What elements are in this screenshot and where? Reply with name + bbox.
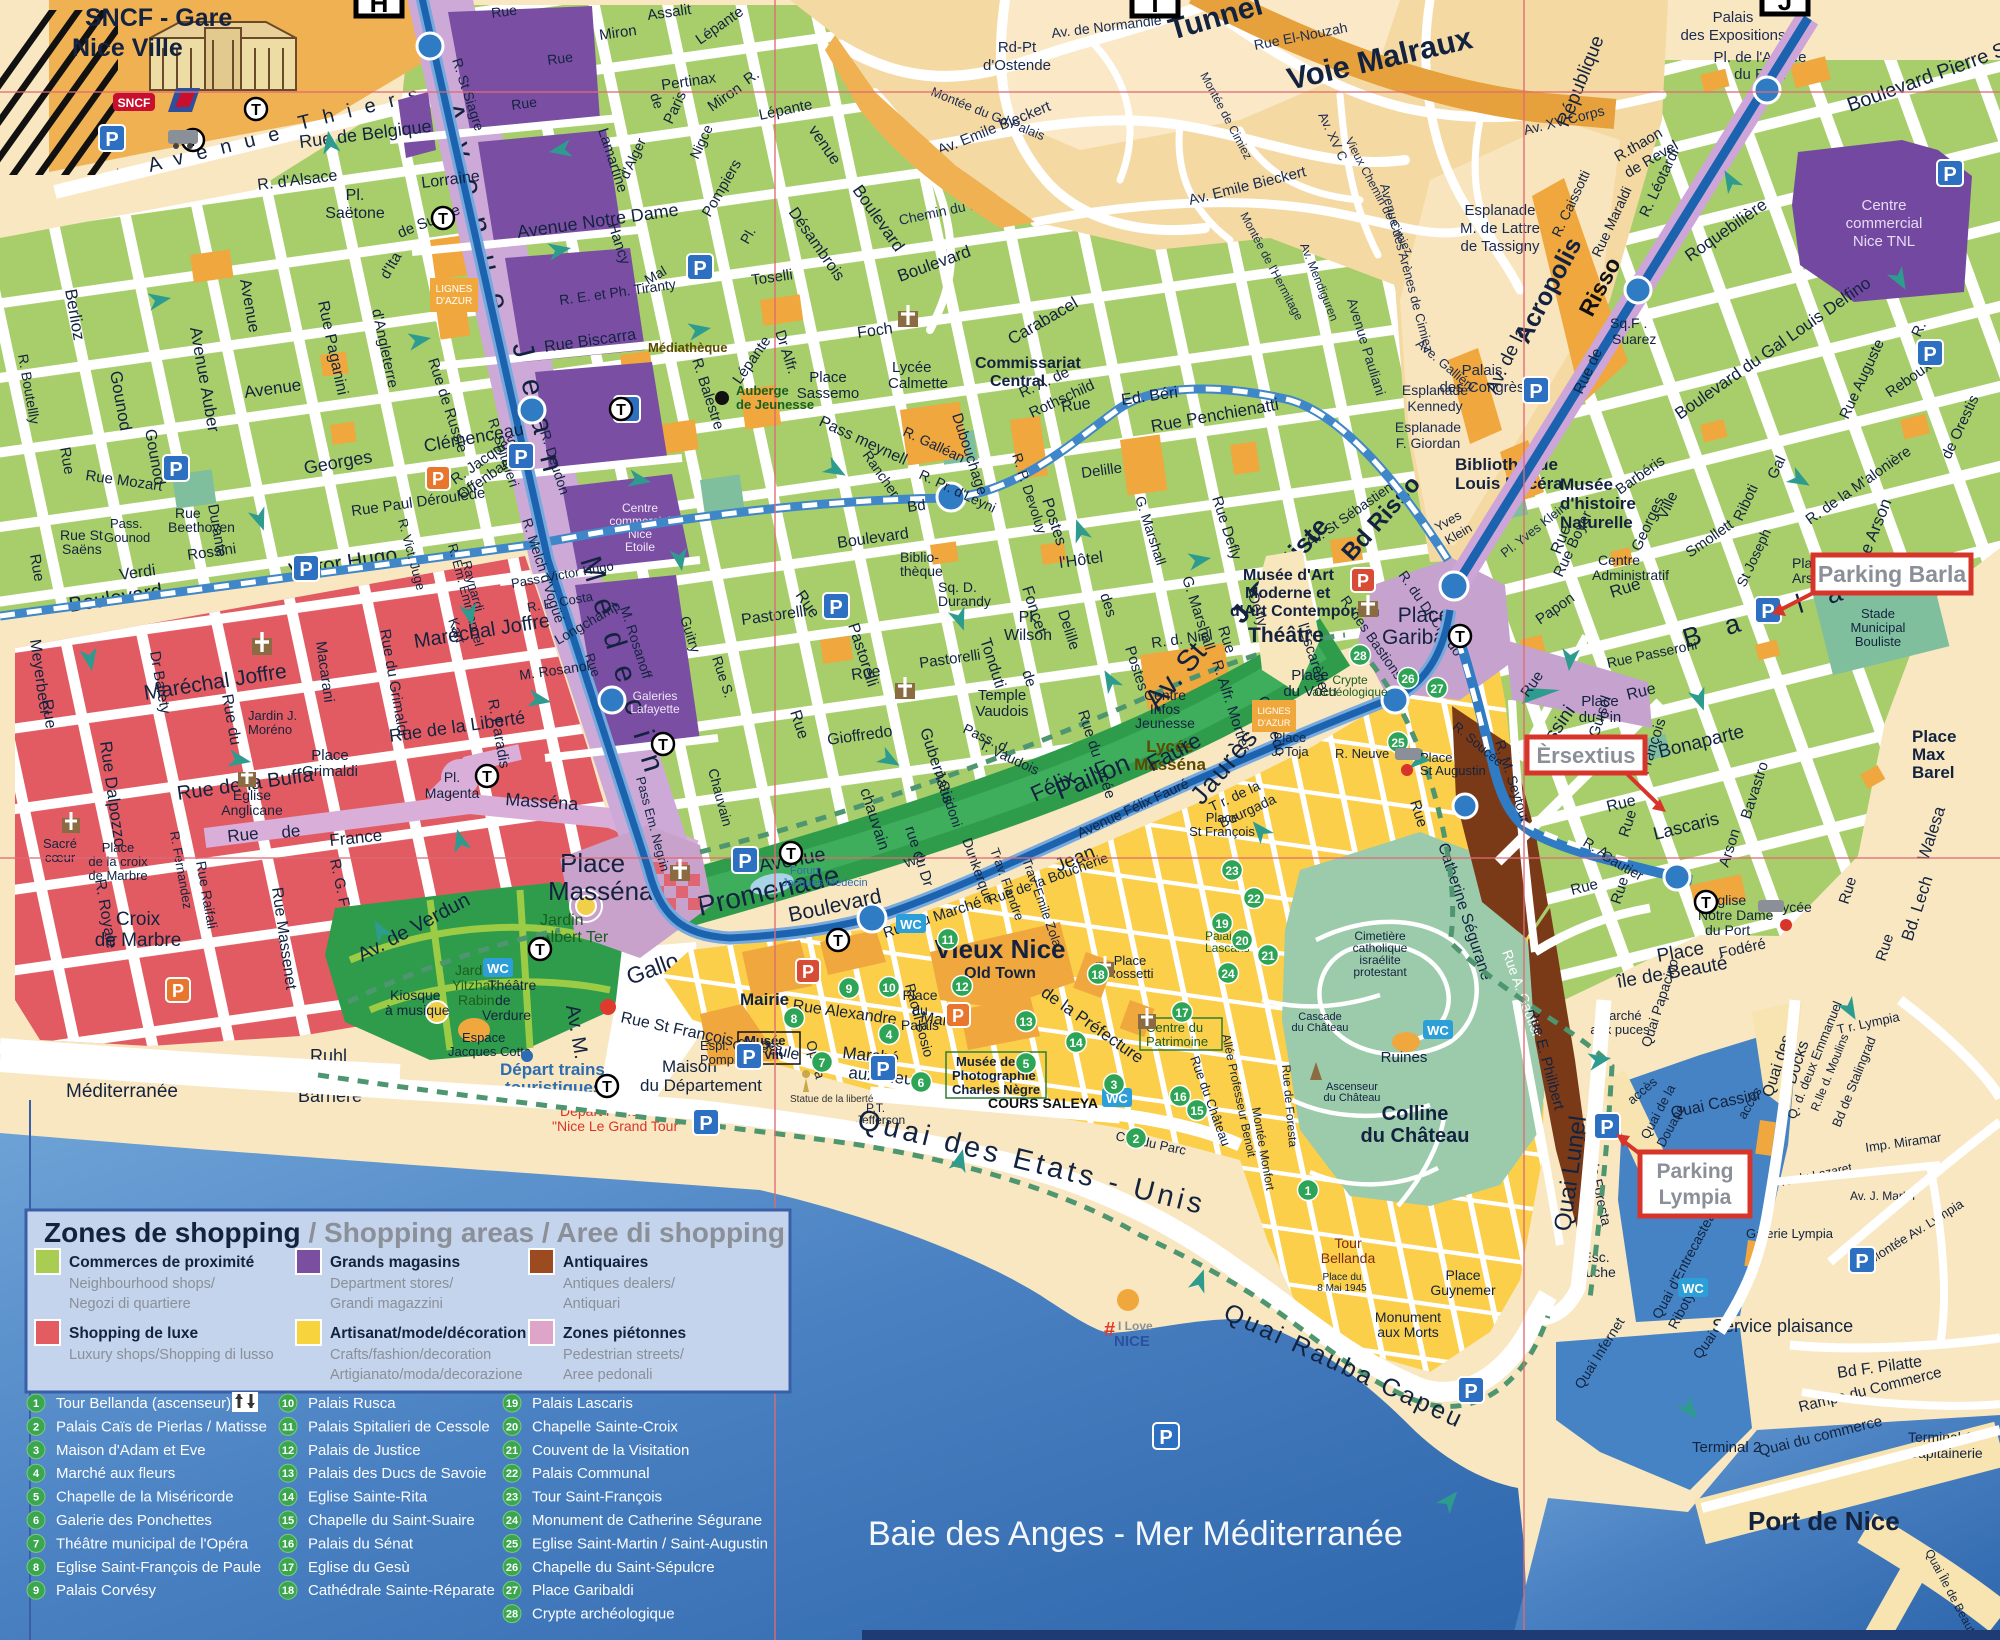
svg-text:I Love: I Love (1118, 1319, 1153, 1333)
svg-text:26: 26 (1401, 672, 1415, 686)
svg-text:25: 25 (506, 1538, 518, 1550)
svg-text:25: 25 (1391, 736, 1405, 750)
svg-text:Department stores/: Department stores/ (330, 1276, 454, 1292)
svg-text:Musée d'Art: Musée d'Art (1243, 567, 1335, 584)
svg-text:SNCF: SNCF (118, 96, 151, 110)
svg-text:Antiques dealers/: Antiques dealers/ (563, 1276, 676, 1292)
svg-text:Grands magasins: Grands magasins (330, 1254, 460, 1271)
svg-text:26: 26 (506, 1562, 518, 1574)
svg-text:J: J (1778, 0, 1792, 16)
svg-text:Durandy: Durandy (938, 593, 991, 609)
svg-text:Kennedy: Kennedy (1407, 398, 1462, 414)
svg-text:WC: WC (1427, 1023, 1449, 1038)
svg-text:D'AZUR: D'AZUR (1258, 718, 1291, 728)
svg-text:Grimaldi: Grimaldi (302, 763, 358, 780)
svg-text:Gounod: Gounod (104, 530, 150, 545)
svg-text:5: 5 (1023, 1057, 1030, 1071)
svg-text:P: P (1529, 381, 1542, 403)
svg-text:27: 27 (506, 1585, 518, 1597)
svg-text:P: P (1855, 1251, 1868, 1273)
svg-text:thèque: thèque (900, 563, 943, 579)
svg-text:18: 18 (1091, 968, 1105, 982)
svg-text:Vaudois: Vaudois (975, 703, 1028, 720)
svg-text:Barel: Barel (1912, 763, 1955, 782)
svg-text:28: 28 (1353, 649, 1367, 663)
svg-text:5: 5 (33, 1492, 39, 1504)
svg-text:Pl.: Pl. (346, 187, 365, 204)
svg-text:Nice Ville: Nice Ville (72, 34, 183, 62)
svg-text:19: 19 (1215, 917, 1229, 931)
svg-text:Patrimoine: Patrimoine (1146, 1034, 1208, 1049)
svg-text:22: 22 (1247, 892, 1261, 906)
svg-text:archéologique: archéologique (1312, 685, 1388, 699)
svg-text:Palais des Ducs de Savoie: Palais des Ducs de Savoie (308, 1465, 486, 1482)
svg-text:Bellanda: Bellanda (1321, 1250, 1376, 1266)
svg-text:LIGNES: LIGNES (436, 284, 473, 295)
svg-text:de la croix: de la croix (88, 854, 148, 869)
svg-text:Guynemer: Guynemer (1430, 1282, 1496, 1298)
svg-text:Kiosque: Kiosque (390, 987, 441, 1003)
svg-text:Eglise Sainte-Rita: Eglise Sainte-Rita (308, 1489, 428, 1506)
svg-text:Rue: Rue (226, 824, 259, 846)
svg-text:P: P (299, 559, 312, 581)
svg-text:Chapelle du Saint-Sépulcre: Chapelle du Saint-Sépulcre (532, 1559, 715, 1576)
svg-text:Palais Caïs de Pierlas / Matis: Palais Caïs de Pierlas / Matisse (56, 1418, 267, 1435)
svg-text:Place: Place (902, 987, 937, 1003)
svg-text:P: P (693, 258, 706, 280)
svg-text:Centre: Centre (1598, 552, 1640, 568)
svg-text:Moderne et: Moderne et (1245, 585, 1331, 602)
svg-text:Marché aux fleurs: Marché aux fleurs (56, 1465, 175, 1482)
svg-text:Antiquari: Antiquari (563, 1296, 620, 1312)
svg-text:Centre: Centre (1861, 197, 1906, 214)
svg-text:Bd: Bd (906, 497, 927, 516)
svg-text:17: 17 (1175, 1006, 1189, 1020)
svg-text:10: 10 (882, 981, 896, 995)
svg-text:7: 7 (819, 1056, 826, 1070)
svg-text:Calmette: Calmette (888, 375, 948, 392)
svg-text:Croix: Croix (116, 909, 161, 930)
svg-text:du Château: du Château (1324, 1092, 1381, 1104)
svg-text:T: T (251, 102, 261, 119)
svg-text:28: 28 (506, 1609, 518, 1621)
svg-text:T: T (833, 933, 843, 950)
svg-text:Zones piétonnes: Zones piétonnes (563, 1325, 686, 1342)
svg-text:P: P (952, 1006, 964, 1026)
svg-text:P: P (742, 1047, 755, 1069)
svg-text:Galerie des Ponchettes: Galerie des Ponchettes (56, 1512, 212, 1529)
svg-text:Esplanade: Esplanade (1395, 419, 1461, 435)
svg-text:Maison d'Adam et Eve: Maison d'Adam et Eve (56, 1442, 206, 1459)
svg-text:Beethoven: Beethoven (168, 519, 235, 535)
svg-text:P: P (1357, 571, 1369, 591)
svg-text:Place Garibaldi: Place Garibaldi (532, 1582, 634, 1599)
svg-text:Place: Place (1274, 730, 1307, 745)
svg-text:commercial: commercial (1846, 215, 1923, 232)
svg-text:P: P (1159, 1427, 1172, 1449)
svg-text:Artisanat/mode/décoration: Artisanat/mode/décoration (330, 1325, 526, 1342)
svg-text:J. Toja: J. Toja (1271, 744, 1309, 759)
svg-text:Place du: Place du (1323, 1272, 1362, 1283)
svg-text:T: T (786, 846, 796, 863)
svg-text:Eglise Saint-François de Paule: Eglise Saint-François de Paule (56, 1559, 261, 1576)
svg-text:Jardin J.: Jardin J. (248, 708, 297, 723)
svg-text:Rd-Pt: Rd-Pt (998, 39, 1037, 56)
svg-text:Palais du Sénat: Palais du Sénat (308, 1535, 414, 1552)
svg-text:Commerces de proximité: Commerces de proximité (69, 1254, 255, 1271)
svg-text:de Marbre: de Marbre (88, 868, 147, 883)
svg-text:Place: Place (1912, 727, 1956, 746)
svg-text:Musée: Musée (1560, 475, 1613, 494)
svg-text:P: P (169, 459, 182, 481)
svg-text:SNCF - Gare: SNCF - Gare (85, 4, 232, 32)
svg-text:1: 1 (1305, 1184, 1312, 1198)
svg-text:Tour Bellanda (ascenseur): Tour Bellanda (ascenseur) (56, 1395, 231, 1412)
svg-text:7: 7 (33, 1538, 39, 1550)
svg-text:3: 3 (33, 1445, 39, 1457)
svg-text:P: P (514, 447, 527, 469)
svg-text:Crafts/fashion/decoration: Crafts/fashion/decoration (330, 1347, 491, 1363)
svg-text:Max: Max (1912, 745, 1946, 764)
svg-text:23: 23 (506, 1492, 518, 1504)
svg-text:14: 14 (282, 1492, 295, 1504)
svg-text:Théâtre municipal de l'Opéra: Théâtre municipal de l'Opéra (56, 1535, 249, 1552)
svg-text:de Jeunesse: de Jeunesse (736, 397, 814, 412)
svg-text:Espace: Espace (462, 1030, 505, 1045)
svg-text:Stade: Stade (1861, 606, 1895, 621)
svg-text:Galeries: Galeries (633, 689, 678, 703)
svg-text:Suarez: Suarez (1612, 331, 1656, 347)
svg-text:Place: Place (1291, 667, 1329, 684)
svg-text:LIGNES: LIGNES (1257, 706, 1290, 716)
svg-text:8 Mai 1945: 8 Mai 1945 (1317, 1283, 1367, 1294)
svg-text:Auberge: Auberge (736, 383, 789, 398)
svg-text:Départ trains: Départ trains (500, 1060, 605, 1079)
svg-text:Etoile: Etoile (625, 540, 655, 554)
svg-text:Place: Place (809, 369, 847, 386)
svg-text:T: T (535, 942, 545, 959)
svg-text:de: de (280, 821, 301, 842)
svg-text:T: T (616, 402, 626, 419)
svg-text:Palais de Justice: Palais de Justice (308, 1442, 421, 1459)
svg-text:Colline: Colline (1382, 1103, 1449, 1125)
svg-text:protestant: protestant (1353, 965, 1407, 979)
svg-text:Couvent de la Visitation: Couvent de la Visitation (532, 1442, 689, 1459)
svg-text:T: T (1701, 895, 1711, 912)
svg-text:Municipal: Municipal (1851, 620, 1906, 635)
svg-text:Pedestrian streets/: Pedestrian streets/ (563, 1347, 685, 1363)
svg-text:Médiathèque: Médiathèque (648, 340, 727, 355)
svg-text:6: 6 (918, 1076, 925, 1090)
svg-text:WC: WC (487, 961, 509, 976)
svg-text:1: 1 (33, 1398, 39, 1410)
svg-text:14: 14 (1069, 1036, 1083, 1050)
svg-text:T: T (438, 211, 448, 228)
svg-text:4: 4 (886, 1028, 893, 1042)
svg-text:Jacques Médecin: Jacques Médecin (782, 877, 868, 889)
svg-text:Artigianato/moda/decorazione: Artigianato/moda/decorazione (330, 1367, 523, 1383)
svg-text:WC: WC (1682, 1281, 1704, 1296)
svg-text:27: 27 (1430, 682, 1444, 696)
svg-text:du Département: du Département (640, 1076, 762, 1095)
svg-text:Grandi magazzini: Grandi magazzini (330, 1296, 443, 1312)
svg-text:P: P (829, 597, 842, 619)
svg-text:12: 12 (282, 1445, 294, 1457)
svg-text:20: 20 (1235, 934, 1249, 948)
svg-text:T: T (482, 769, 492, 786)
svg-text:du Château: du Château (1292, 1022, 1349, 1034)
svg-text:Palais Corvésy: Palais Corvésy (56, 1582, 157, 1599)
svg-text:F. Giordan: F. Giordan (1396, 435, 1461, 451)
svg-text:17: 17 (282, 1562, 294, 1574)
svg-text:3: 3 (1111, 1078, 1118, 1092)
svg-text:de Tassigny: de Tassigny (1461, 238, 1540, 255)
svg-text:Monument: Monument (1375, 1309, 1441, 1325)
svg-text:19: 19 (506, 1398, 518, 1410)
svg-text:4: 4 (33, 1468, 40, 1480)
svg-text:Saëtone: Saëtone (325, 205, 385, 222)
svg-text:24: 24 (1221, 967, 1235, 981)
svg-text:Jardin: Jardin (540, 912, 584, 929)
svg-text:Place: Place (560, 848, 625, 878)
svg-text:Neighbourhood shops/: Neighbourhood shops/ (69, 1276, 216, 1292)
svg-text:Shopping de luxe: Shopping de luxe (69, 1325, 199, 1342)
svg-text:P: P (738, 851, 751, 873)
svg-text:Saëns: Saëns (62, 541, 102, 557)
svg-text:NICE: NICE (1114, 1333, 1150, 1350)
svg-text:Sq.F .: Sq.F . (1610, 315, 1647, 331)
svg-text:Èrsextius: Èrsextius (1536, 743, 1635, 768)
svg-text:Luxury shops/Shopping di lusso: Luxury shops/Shopping di lusso (69, 1347, 274, 1363)
svg-text:15: 15 (282, 1515, 294, 1527)
svg-text:11: 11 (282, 1421, 294, 1433)
svg-text:Chapelle Sainte-Croix: Chapelle Sainte-Croix (532, 1418, 678, 1435)
svg-text:15: 15 (1190, 1104, 1204, 1118)
svg-text:10: 10 (282, 1398, 294, 1410)
svg-text:Monument de Catherine Ségurane: Monument de Catherine Ségurane (532, 1512, 762, 1529)
svg-text:Charles Nègre: Charles Nègre (952, 1082, 1040, 1097)
svg-text:2: 2 (33, 1421, 39, 1433)
svg-text:Palais Lascaris: Palais Lascaris (532, 1395, 633, 1412)
svg-text:R. Neuve: R. Neuve (1335, 746, 1389, 761)
svg-text:23: 23 (1225, 864, 1239, 878)
svg-text:21: 21 (506, 1445, 518, 1457)
svg-text:Méditerranée: Méditerranée (66, 1081, 178, 1102)
svg-text:Antiquaires: Antiquaires (563, 1254, 648, 1271)
svg-text:16: 16 (282, 1538, 294, 1550)
svg-text:Palais: Palais (901, 1017, 939, 1033)
svg-text:Théâtre: Théâtre (488, 977, 536, 993)
svg-text:du Port: du Port (1705, 922, 1750, 938)
svg-text:WC: WC (900, 917, 922, 932)
svg-text:Tour: Tour (1334, 1235, 1362, 1251)
svg-text:Anglicane: Anglicane (221, 802, 283, 818)
svg-text:Aree pedonali: Aree pedonali (563, 1367, 653, 1383)
svg-text:Place: Place (102, 840, 135, 855)
svg-text:T: T (658, 737, 668, 754)
svg-text:Pass.: Pass. (110, 516, 143, 531)
svg-text:aux Morts: aux Morts (1377, 1324, 1438, 1340)
svg-text:P: P (1943, 164, 1956, 186)
svg-text:à musique: à musique (385, 1002, 450, 1018)
svg-text:P: P (432, 469, 444, 489)
svg-text:Old Town: Old Town (964, 965, 1036, 982)
svg-text:20: 20 (506, 1421, 518, 1433)
svg-text:Eglise: Eglise (233, 787, 271, 803)
svg-text:Crypte archéologique: Crypte archéologique (532, 1606, 675, 1623)
svg-text:Palais Communal: Palais Communal (532, 1465, 650, 1482)
svg-text:12: 12 (955, 980, 969, 994)
svg-text:6: 6 (33, 1515, 39, 1527)
svg-text:8: 8 (791, 1012, 798, 1026)
svg-text:P: P (1923, 344, 1936, 366)
svg-text:Théâtre: Théâtre (1248, 624, 1324, 647)
svg-text:Terminal 2: Terminal 2 (1692, 1439, 1761, 1456)
svg-text:P: P (172, 981, 184, 1001)
svg-text:9: 9 (846, 982, 853, 996)
svg-text:d'Ostende: d'Ostende (983, 57, 1051, 74)
svg-text:T: T (602, 1079, 612, 1096)
svg-text:13: 13 (1019, 1015, 1033, 1029)
svg-text:P: P (876, 1059, 889, 1081)
svg-text:8: 8 (33, 1562, 39, 1574)
svg-text:Mairie: Mairie (740, 990, 789, 1009)
svg-text:Temple: Temple (978, 687, 1026, 704)
svg-text:18: 18 (282, 1585, 294, 1597)
svg-text:9: 9 (33, 1585, 39, 1597)
svg-text:Palais: Palais (1713, 9, 1754, 26)
svg-text:21: 21 (1261, 949, 1275, 963)
svg-text:des Expositions: des Expositions (1680, 27, 1785, 44)
svg-text:P: P (1600, 1117, 1613, 1139)
svg-text:d'histoire: d'histoire (1560, 494, 1636, 513)
svg-text:P: P (105, 129, 118, 151)
svg-text:Magenta: Magenta (425, 785, 480, 801)
svg-text:M. de Lattre: M. de Lattre (1460, 220, 1540, 237)
svg-text:Centre: Centre (622, 501, 658, 515)
svg-text:Verdure: Verdure (482, 1007, 531, 1023)
svg-text:Chapelle du Saint-Suaire: Chapelle du Saint-Suaire (308, 1512, 475, 1529)
svg-text:Place: Place (1445, 1267, 1480, 1283)
svg-text:Palais Spitalieri de Cessole: Palais Spitalieri de Cessole (308, 1418, 490, 1435)
svg-text:d'Art Contemporain: d'Art Contemporain (1230, 603, 1380, 620)
svg-text:Place: Place (311, 747, 349, 764)
svg-text:T: T (1455, 629, 1465, 646)
svg-text:Pl.: Pl. (444, 769, 460, 785)
svg-text:Port de Nice: Port de Nice (1748, 1506, 1900, 1536)
svg-text:Chapelle de la Miséricorde: Chapelle de la Miséricorde (56, 1489, 234, 1506)
svg-text:2: 2 (1133, 1132, 1140, 1146)
svg-text:Parking Barla: Parking Barla (1818, 561, 1966, 587)
svg-text:Nice TNL: Nice TNL (1853, 233, 1915, 250)
svg-text:P: P (699, 1113, 712, 1135)
svg-text:Cathédrale Sainte-Réparate: Cathédrale Sainte-Réparate (308, 1582, 495, 1599)
svg-text:du Château: du Château (1361, 1125, 1470, 1147)
svg-text:P: P (1464, 1381, 1477, 1403)
svg-text:I: I (1151, 0, 1158, 18)
svg-text:Baie des Anges - Mer Méditerra: Baie des Anges - Mer Méditerranée (868, 1515, 1403, 1553)
svg-text:Moréno: Moréno (248, 722, 292, 737)
svg-text:Esplanade: Esplanade (1465, 202, 1536, 219)
svg-text:Masséna: Masséna (548, 876, 654, 906)
svg-text:13: 13 (282, 1468, 294, 1480)
svg-text:Lafayette: Lafayette (630, 702, 680, 716)
svg-text:P: P (1761, 601, 1774, 623)
svg-text:Palais Rusca: Palais Rusca (308, 1395, 396, 1412)
svg-text:Lympia: Lympia (1659, 1186, 1732, 1209)
svg-text:Eglise Saint-Martin / Saint-Au: Eglise Saint-Martin / Saint-Augustin (532, 1535, 768, 1552)
svg-text:Jeunesse: Jeunesse (1135, 715, 1195, 731)
svg-text:Jacques Cotta: Jacques Cotta (448, 1044, 532, 1059)
svg-text:11: 11 (942, 933, 955, 947)
svg-text:D'AZUR: D'AZUR (436, 296, 472, 307)
svg-text:Zones de shopping / Shopping a: Zones de shopping / Shopping areas / Are… (44, 1217, 785, 1248)
svg-text:du: du (912, 1002, 928, 1018)
svg-text:H: H (370, 0, 389, 18)
svg-text:Parking: Parking (1656, 1160, 1733, 1183)
svg-text:P: P (802, 962, 814, 982)
svg-text:Bouliste: Bouliste (1855, 634, 1901, 649)
svg-text:24: 24 (506, 1515, 519, 1527)
svg-text:22: 22 (506, 1468, 518, 1480)
svg-text:Lycée: Lycée (892, 359, 931, 376)
svg-text:Sacré: Sacré (43, 836, 77, 851)
svg-text:Eglise du Gesù: Eglise du Gesù (308, 1559, 410, 1576)
svg-text:16: 16 (1173, 1090, 1187, 1104)
svg-text:St Augustin: St Augustin (1420, 763, 1486, 778)
svg-text:de: de (495, 992, 511, 1008)
svg-text:Rabin: Rabin (458, 992, 495, 1008)
svg-text:Negozi di quartiere: Negozi di quartiere (69, 1296, 191, 1312)
svg-text:Tour Saint-François: Tour Saint-François (532, 1489, 662, 1506)
